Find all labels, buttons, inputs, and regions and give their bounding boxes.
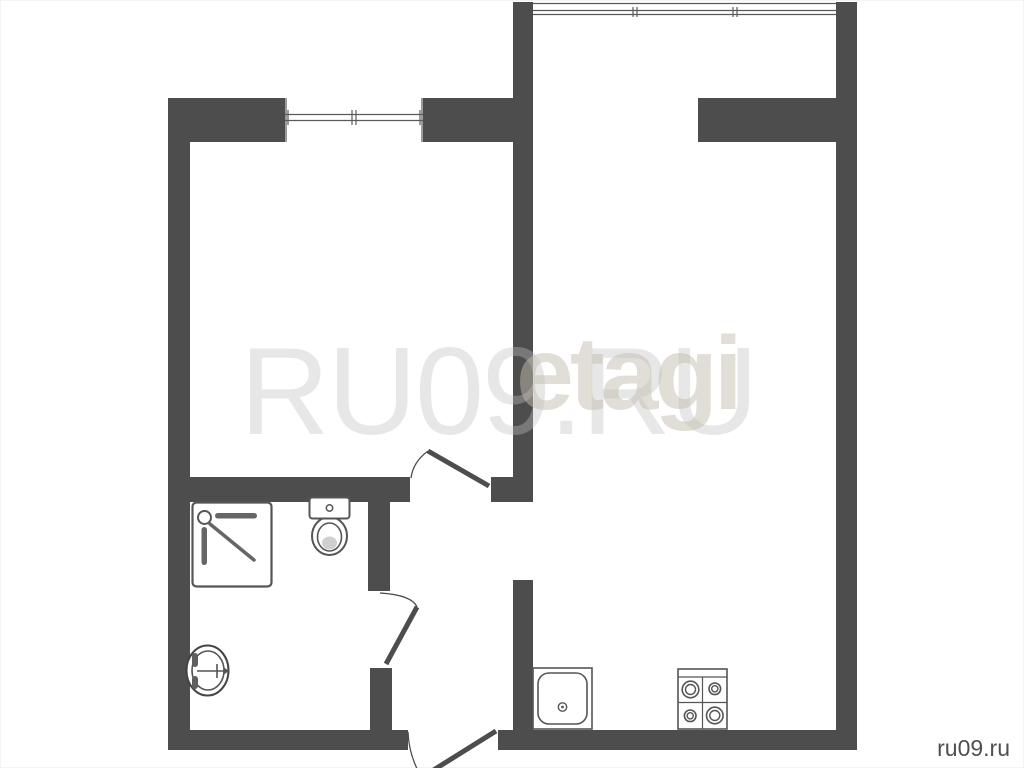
walls	[168, 2, 857, 750]
wall-bathroom-right	[368, 502, 390, 591]
wall-top-right	[698, 98, 837, 142]
wall-divider-stub	[491, 477, 513, 502]
wall-left	[168, 98, 190, 750]
floor-plan-canvas	[0, 0, 1024, 768]
entrance-door-leaf	[424, 731, 496, 768]
entrance-door-arc	[408, 732, 421, 768]
wall-bottom-left	[168, 730, 408, 750]
bathroom-door-icon	[380, 593, 417, 664]
room-door-arc	[411, 451, 428, 478]
site-credit-text: ru09.ru	[937, 737, 1010, 760]
wall-top-left	[168, 98, 285, 142]
bathroom-door-leaf	[386, 607, 417, 664]
wall-bottom-right	[498, 730, 857, 750]
washbasin-icon	[187, 646, 230, 696]
kitchen-sink-icon	[533, 668, 592, 729]
room-door-leaf	[428, 451, 489, 486]
wall-bathroom-stub	[370, 668, 392, 730]
room-door-icon	[411, 451, 489, 486]
shower-cabin-icon	[193, 503, 272, 587]
entrance-door-icon	[408, 731, 496, 768]
balcony-glazing-icon	[533, 4, 837, 18]
wall-bathroom-top	[168, 477, 410, 502]
wall-right	[836, 2, 857, 750]
toilet-icon	[310, 498, 350, 556]
stove-icon	[678, 669, 727, 729]
floor-plan-image: RU09.RU etagi ru09.ru	[0, 0, 1024, 768]
wall-divider-lower	[513, 580, 533, 750]
wall-divider-upper	[513, 2, 533, 502]
bathroom-door-arc	[380, 593, 417, 607]
window-icon	[285, 98, 423, 142]
